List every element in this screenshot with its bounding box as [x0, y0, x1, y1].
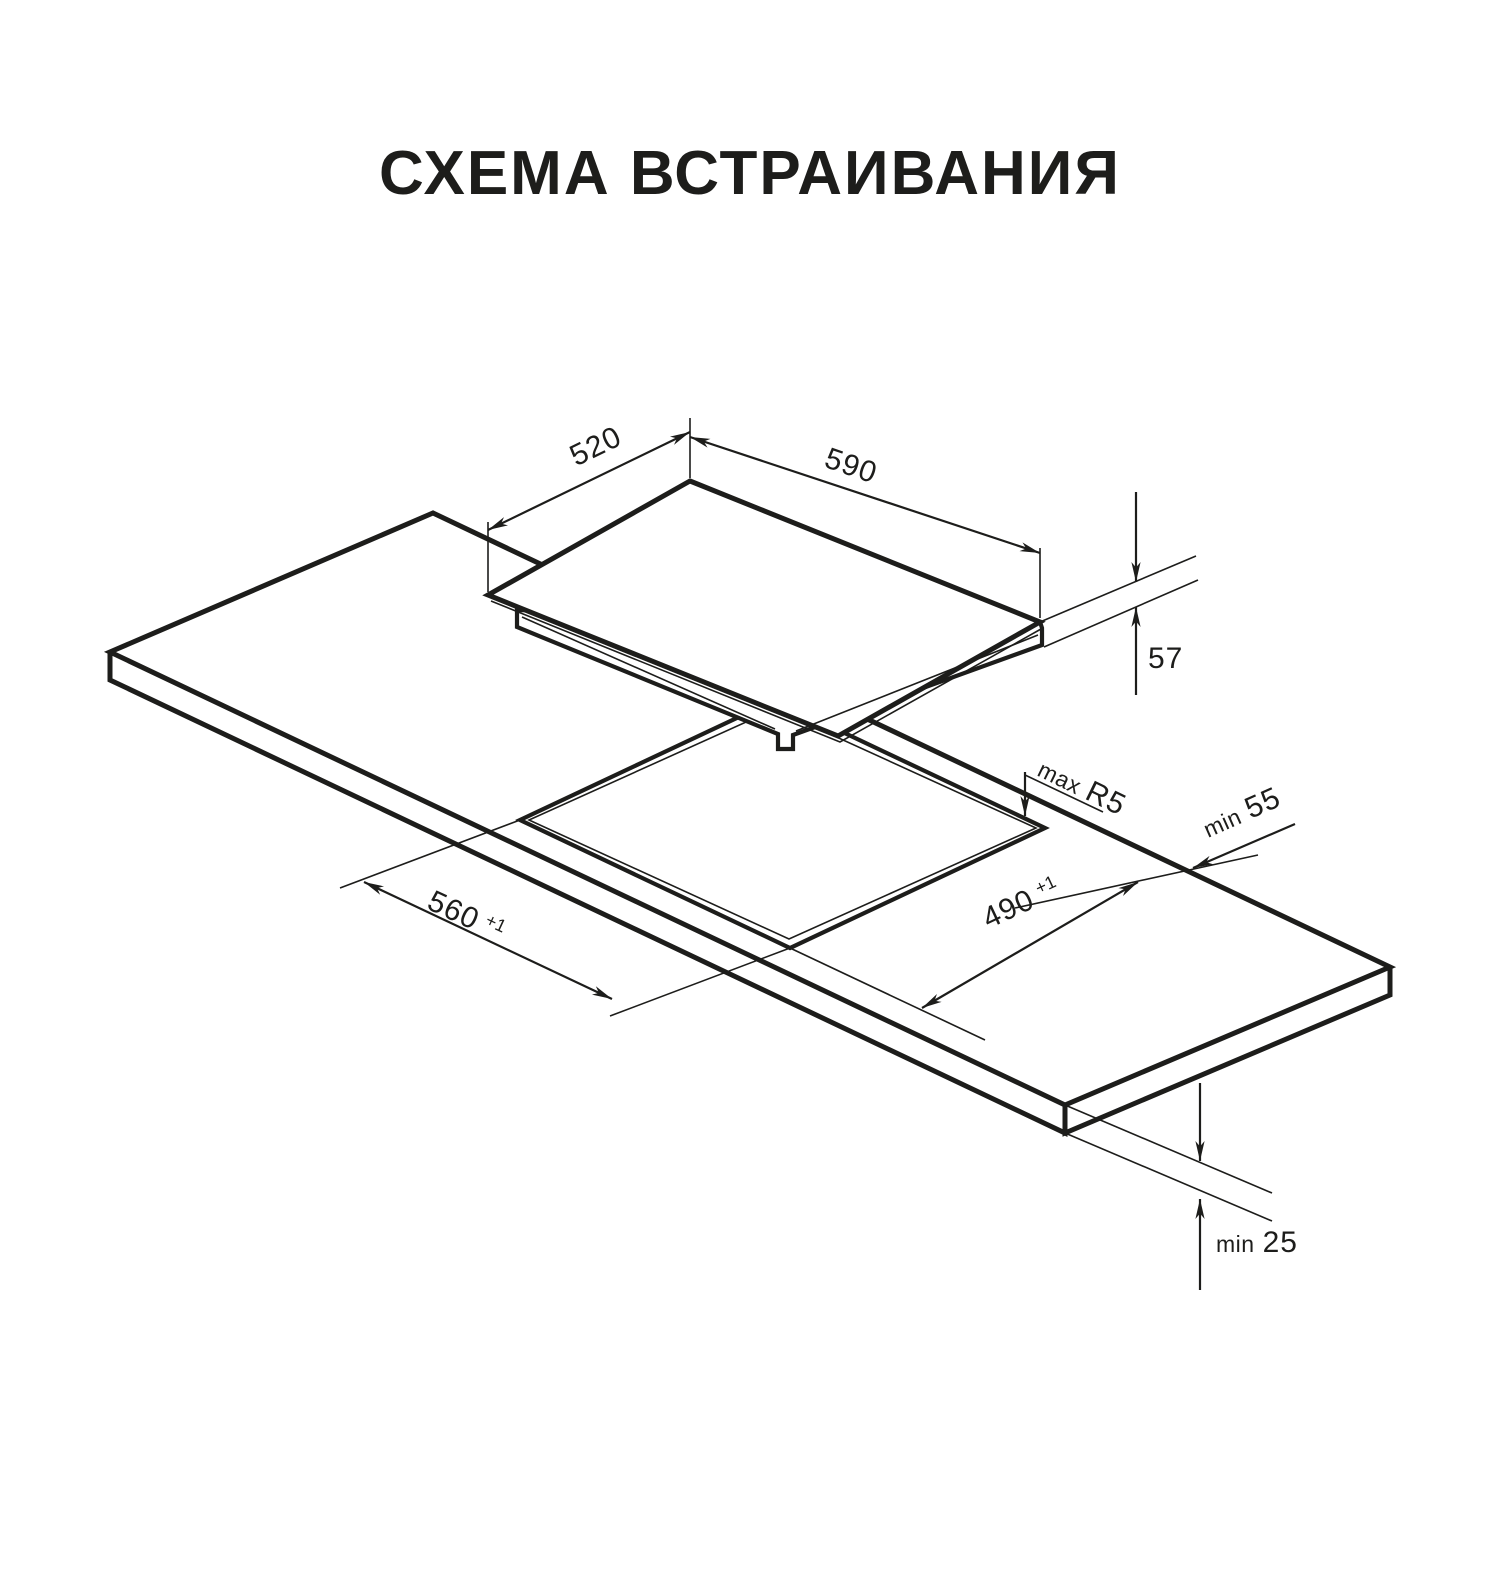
label-cutout-width-tolerance: +1 — [482, 910, 509, 937]
label-corner-radius-value: R5 — [1081, 775, 1132, 822]
label-worktop-thickness-value: 25 — [1263, 1226, 1298, 1259]
installation-diagram: 520 590 57 maxR5 min55 560+1 490+1 min25 — [0, 0, 1500, 1586]
ext-line-hob-height-bottom — [1044, 580, 1198, 647]
label-rear-clearance-qualifier: min — [1199, 803, 1245, 842]
ext-line-hob-height-top — [1040, 556, 1196, 622]
label-cutout-width-value: 560 — [423, 884, 485, 936]
label-hob-depth: 520 — [565, 420, 627, 473]
label-rear-clearance-value: 55 — [1240, 781, 1286, 826]
label-worktop-thickness-qualifier: min — [1216, 1231, 1255, 1257]
label-cutout-width: 560+1 — [423, 884, 510, 948]
label-corner-radius-qualifier: max — [1034, 756, 1086, 799]
label-worktop-thickness: min25 — [1216, 1226, 1298, 1259]
installation-scheme-page: СХЕМА ВСТРАИВАНИЯ — [0, 0, 1500, 1586]
ext-line-worktop-front-bottom — [1065, 1133, 1272, 1221]
ext-line-worktop-front-top — [1065, 1105, 1272, 1193]
label-hob-height: 57 — [1148, 642, 1183, 675]
